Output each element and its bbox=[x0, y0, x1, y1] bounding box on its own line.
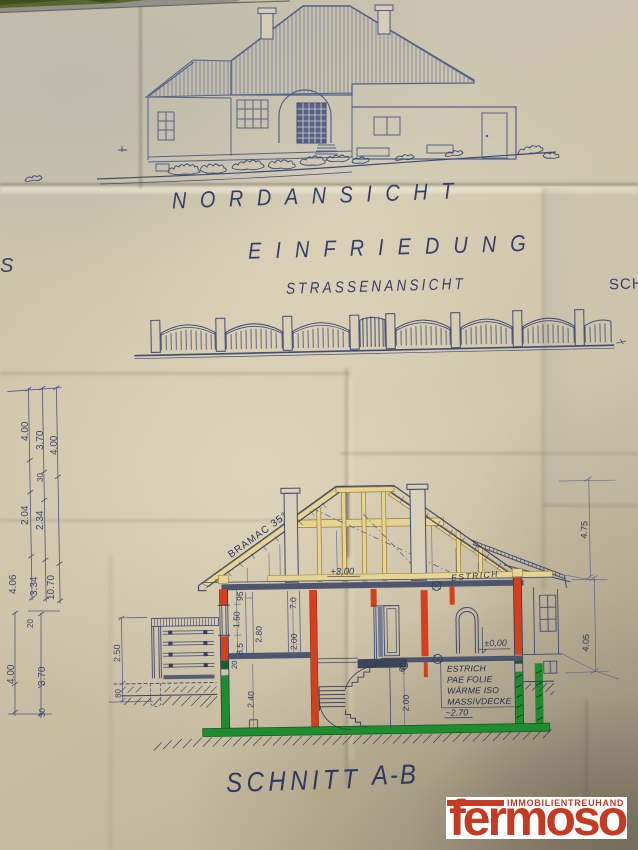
svg-text:2.04: 2.04 bbox=[20, 505, 31, 525]
svg-text:4.06: 4.06 bbox=[8, 574, 19, 594]
svg-text:4.05: 4.05 bbox=[581, 634, 592, 652]
svg-text:2.50: 2.50 bbox=[112, 644, 122, 662]
svg-text:4.00: 4.00 bbox=[49, 435, 60, 455]
svg-text:3.34: 3.34 bbox=[29, 576, 40, 596]
svg-text:STRASSENANSICHT: STRASSENANSICHT bbox=[286, 276, 466, 298]
svg-text:±0,00: ±0,00 bbox=[484, 638, 507, 648]
svg-text:WÄRME ISO: WÄRME ISO bbox=[447, 685, 499, 696]
svg-text:MASSIVDECKE: MASSIVDECKE bbox=[447, 696, 511, 707]
svg-text:S: S bbox=[0, 255, 14, 277]
svg-text:4.00: 4.00 bbox=[6, 664, 17, 684]
svg-text:EINFRIEDUNG: EINFRIEDUNG bbox=[248, 229, 540, 264]
svg-text:PAE FOLIE: PAE FOLIE bbox=[447, 674, 493, 685]
svg-text:SCHNITT: SCHNITT bbox=[226, 764, 362, 798]
svg-text:NORDANSICHT: NORDANSICHT bbox=[171, 177, 467, 214]
svg-text:7.0: 7.0 bbox=[288, 597, 298, 609]
svg-text:A-B: A-B bbox=[370, 760, 419, 791]
svg-text:4.00: 4.00 bbox=[20, 421, 31, 441]
svg-text:1.50: 1.50 bbox=[231, 611, 242, 628]
svg-text:2.00: 2.00 bbox=[288, 633, 299, 650]
svg-text:4.75: 4.75 bbox=[579, 521, 590, 539]
svg-text:8.5: 8.5 bbox=[235, 643, 245, 655]
svg-text:.60: .60 bbox=[397, 662, 407, 674]
svg-text:3.70: 3.70 bbox=[37, 666, 48, 686]
svg-text:2.34: 2.34 bbox=[35, 510, 46, 530]
svg-text:2.40: 2.40 bbox=[245, 691, 256, 708]
svg-text:80: 80 bbox=[114, 688, 123, 698]
svg-text:30: 30 bbox=[36, 473, 45, 482]
svg-text:ESTRICH: ESTRICH bbox=[447, 663, 487, 674]
svg-text:2.00: 2.00 bbox=[400, 694, 411, 711]
svg-text:3.70: 3.70 bbox=[35, 430, 46, 450]
svg-text:~2.70: ~2.70 bbox=[445, 707, 468, 717]
svg-text:95: 95 bbox=[235, 591, 245, 601]
svg-text:10.70: 10.70 bbox=[46, 575, 57, 600]
svg-text:2.80: 2.80 bbox=[253, 626, 264, 643]
svg-text:20: 20 bbox=[26, 619, 35, 628]
svg-text:BRAMAC 35°: BRAMAC 35° bbox=[226, 510, 290, 560]
svg-text:30: 30 bbox=[38, 708, 47, 717]
svg-text:20: 20 bbox=[230, 661, 239, 670]
svg-text:SCHN: SCHN bbox=[609, 275, 638, 294]
svg-text:+3,00: +3,00 bbox=[330, 566, 355, 577]
